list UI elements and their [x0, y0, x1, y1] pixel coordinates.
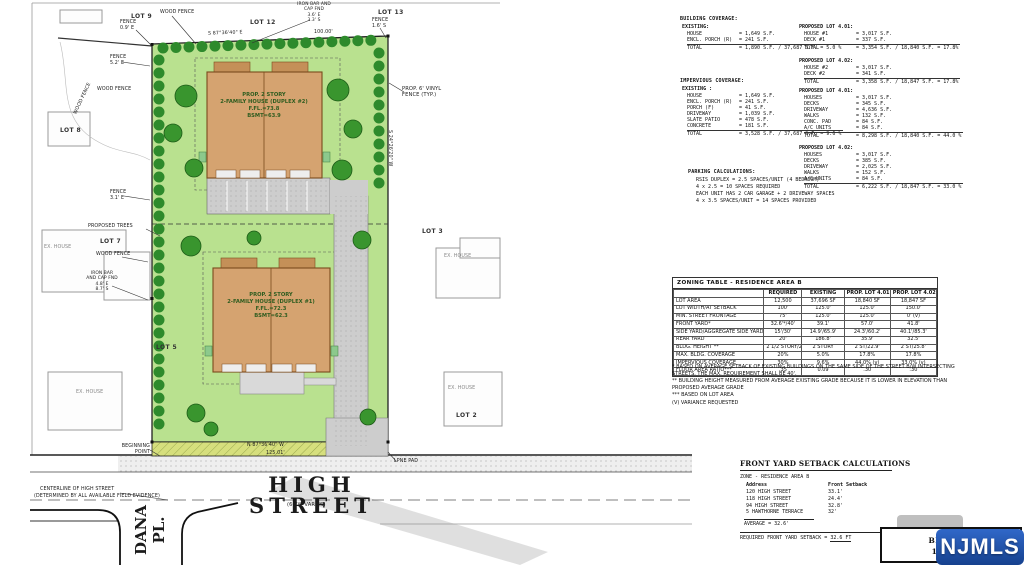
- building-coverage-existing: BUILDING COVERAGE: EXISTING: HOUSE= 1,64…: [680, 16, 796, 51]
- zoning-notes: * BASED ON AVERAGE SETBACK OF EXISTING B…: [672, 364, 964, 407]
- table-cell: TOTAL: [687, 131, 739, 138]
- table-row: 94 HIGH STREET32.8': [744, 503, 869, 510]
- deck: [214, 62, 250, 73]
- parking-title: PARKING CALCULATIONS:: [688, 169, 920, 175]
- impervious-existing-subtitle: EXISTING :: [682, 86, 796, 92]
- table-cell: 14.9'/65.9': [802, 329, 844, 337]
- table-cell: = 241 S.F.: [739, 37, 777, 43]
- label-proposed-trees: PROPOSED TREES: [88, 224, 133, 230]
- lot402-subtitle: PROPOSED LOT 4.02:: [799, 58, 937, 64]
- table-row: REAR YARD20'186.8'35.9'32.5': [674, 336, 937, 344]
- table-cell: 20%: [764, 352, 802, 360]
- table-cell: 33.1': [826, 489, 869, 496]
- setback-zone: ZONE - RESIDENCE AREA B: [740, 474, 892, 481]
- njmls-watermark-logo: NJMLS: [936, 529, 1024, 565]
- impervious-lot401-subtitle: PROPOSED LOT 4.01:: [799, 88, 937, 94]
- label-lot5: LOT 5: [156, 344, 177, 351]
- table-cell: 186.8': [802, 336, 844, 344]
- table-cell: EXISTING: [802, 290, 844, 298]
- table-row: MIN. STREET FRONTAGE75'125.0'125.0'0' (v…: [674, 313, 937, 321]
- table-row: DECK #1= 337 S.F.: [804, 37, 894, 43]
- table-cell: 12,500: [764, 298, 802, 306]
- label-vinyl-fence: PROP. 6' VINYL FENCE (TYP.): [402, 86, 441, 98]
- table-row: LOT AREA12,50037,696 SF18,840 SF18,847 S…: [674, 298, 937, 306]
- table-row: 5 HAWTHORNE TERRACE32': [744, 509, 869, 516]
- label-dim-bottom: 125.01': [266, 451, 285, 457]
- table-cell: DECK #1: [804, 37, 856, 43]
- tree-icon: [360, 409, 376, 425]
- label-lot8: LOT 8: [60, 127, 81, 134]
- tree-icon: [344, 120, 362, 138]
- deck: [279, 258, 315, 269]
- table-row: FRONT YARD*32.6'*/40'39.1'57.0'41.8': [674, 321, 937, 329]
- building-lot401-total: TOTAL= 3,354 S.F. / 18,840 S.F. = 17.8%: [804, 44, 960, 51]
- table-cell: = 341 S.F.: [856, 71, 894, 77]
- table-cell: 17.8%: [844, 352, 890, 360]
- impervious-existing-table: HOUSE= 1,649 S.F.ENCL. PORCH (R)= 241 S.…: [687, 93, 777, 129]
- label-fence-09: FENCE 0.9' E: [120, 20, 136, 32]
- label-lpne-pad: LPNE PAD: [394, 459, 418, 465]
- table-cell: 20': [764, 336, 802, 344]
- label-lot12: LOT 12: [250, 19, 276, 26]
- zoning-table-title: ZONING TABLE - RESIDENCE AREA B: [673, 278, 937, 289]
- table-cell: 24.4': [826, 496, 869, 503]
- impervious-title: IMPERVIOUS COVERAGE:: [680, 78, 796, 84]
- table-cell: TOTAL: [804, 79, 856, 86]
- table-row: DECK #2= 341 S.F.: [804, 71, 894, 77]
- tree-icon: [187, 404, 205, 422]
- table-cell: 2 1/2 STORY/28': [764, 344, 802, 352]
- table-cell: 37,696 SF: [802, 298, 844, 306]
- label-ex-house-lot3: EX. HOUSE: [444, 254, 471, 260]
- table-cell: 18,840 SF: [844, 298, 890, 306]
- table-row: AddressFront Setback: [744, 482, 869, 489]
- table-row: BLDG. HEIGHT **2 1/2 STORY/28'2 STORY2 S…: [674, 344, 937, 352]
- table-cell: 125.0': [802, 313, 844, 321]
- stoop: [240, 372, 304, 394]
- table-cell: 41.8': [890, 321, 936, 329]
- centerline-note-1: CENTERLINE OF HIGH STREET: [40, 487, 114, 493]
- tree-icon: [204, 422, 218, 436]
- table-cell: [674, 290, 764, 298]
- label-iron-bar-mid: IRON BAR AND CAP FND 4.8' E 8.7' S: [84, 271, 120, 292]
- table-cell: ENCL. PORCH (R): [687, 37, 739, 43]
- table-cell: REQUIRED: [764, 290, 802, 298]
- building-existing-table: HOUSE= 1,649 S.F.ENCL. PORCH (R)= 241 S.…: [687, 31, 777, 43]
- table-row: ENCL. PORCH (R)= 241 S.F.: [687, 37, 777, 43]
- text-line: 4 x 3.5 SPACES/UNIT = 14 SPACES PROVIDED: [696, 198, 920, 204]
- table-cell: CONCRETE: [687, 123, 739, 129]
- tree-icon: [353, 231, 371, 249]
- table-cell: 0' (v): [890, 313, 936, 321]
- text-line: ** BUILDING HEIGHT MEASURED FROM AVERAGE…: [672, 378, 964, 391]
- table-cell: 18,847 SF: [890, 298, 936, 306]
- text-line: 4 x 2.5 = 10 SPACES REQUIRED: [696, 184, 920, 190]
- table-cell: REAR YARD: [674, 336, 764, 344]
- table-cell: = 8,298 S.F. / 18,840 S.F. = 44.0 %: [856, 133, 963, 140]
- impervious-lot402-subtitle: PROPOSED LOT 4.02:: [799, 145, 937, 151]
- table-row: TOTAL= 8,298 S.F. / 18,840 S.F. = 44.0 %: [804, 133, 963, 140]
- table-cell: Front Setback: [826, 482, 869, 489]
- table-cell: 32.5': [890, 336, 936, 344]
- table-row: 120 HIGH STREET33.1': [744, 489, 869, 496]
- label-ex-house-lot7: EX. HOUSE: [44, 245, 71, 251]
- zoning-table: ZONING TABLE - RESIDENCE AREA B REQUIRED…: [672, 277, 938, 377]
- text-line: *** BASED ON LOT AREA: [672, 392, 964, 399]
- building-lot402-total: TOTAL= 3,358 S.F. / 18,847 S.F. = 17.8%: [804, 78, 960, 85]
- setback-average: AVERAGE = 32.6': [744, 519, 814, 528]
- tree-icon: [164, 124, 182, 142]
- building-lot401-table: HOUSE #1= 3,017 S.F.DECK #1= 337 S.F.: [804, 31, 894, 43]
- dana-pl-label: DANA PL.: [132, 502, 168, 558]
- label-wood-fence-mid: WOOD FENCE: [96, 252, 130, 258]
- label-wood-fence-top: WOOD FENCE: [160, 10, 194, 16]
- table-cell: LOT AREA: [674, 298, 764, 306]
- table-cell: 2 ST/25.8': [890, 344, 936, 352]
- table-cell: 24.3'/60.2': [844, 329, 890, 337]
- table-cell: 57.0': [844, 321, 890, 329]
- table-cell: 15'/30': [764, 329, 802, 337]
- walkway: [302, 378, 336, 385]
- label-bearing-bottom: N 87°36'40" W: [247, 443, 284, 449]
- table-cell: 94 HIGH STREET: [744, 503, 826, 510]
- building-coverage-title: BUILDING COVERAGE:: [680, 16, 796, 22]
- tree-icon: [327, 79, 349, 101]
- label-bearing-right: S 24°26'20" W: [386, 130, 392, 166]
- label-bearing-top: S 87°36'40" E: [208, 30, 243, 37]
- tree-icon: [185, 159, 203, 177]
- table-cell: TOTAL: [687, 45, 739, 52]
- table-cell: 125.0': [844, 313, 890, 321]
- existing-subtitle: EXISTING:: [682, 24, 796, 30]
- table-cell: 35.9': [844, 336, 890, 344]
- duplex-1-label: PROP. 2 STORY 2-FAMILY HOUSE (DUPLEX #1)…: [212, 292, 330, 320]
- table-cell: 125.0': [802, 305, 844, 313]
- table-cell: SIDE YARD/AGGREGATE SIDE YARD: [674, 329, 764, 337]
- table-cell: 39.1': [802, 321, 844, 329]
- table-cell: PROP. LOT 4.01: [844, 290, 890, 298]
- setback-required-label: REQUIRED FRONT YARD SETBACK =: [740, 535, 830, 541]
- table-cell: TOTAL: [804, 133, 856, 140]
- table-cell: 5.0%: [802, 352, 844, 360]
- deck: [221, 258, 257, 269]
- table-row: REQUIREDEXISTINGPROP. LOT 4.01PROP. LOT …: [674, 290, 937, 298]
- label-lot3: LOT 3: [422, 228, 443, 235]
- tree-icon: [247, 231, 261, 245]
- table-row: A/C UNITS= 84 S.F.: [804, 125, 894, 131]
- text-line: EACH UNIT HAS 2 CAR GARAGE + 2 DRIVEWAY …: [696, 191, 920, 197]
- site-plan-sheet: LOT 9 WOOD FENCE FENCE 0.9' E IRON BAR A…: [0, 0, 1024, 565]
- table-cell: MAX. BLDG. COVERAGE: [674, 352, 764, 360]
- duplex-2-footprint: [207, 72, 322, 178]
- table-row: MAX. BLDG. COVERAGE20%5.0%17.8%17.8%: [674, 352, 937, 360]
- lot401-subtitle: PROPOSED LOT 4.01:: [799, 24, 937, 30]
- building-lot402-table: HOUSE #2= 3,017 S.F.DECK #2= 341 S.F.: [804, 65, 894, 77]
- table-cell: = 3,354 S.F. / 18,840 S.F. = 17.8%: [856, 45, 960, 52]
- text-line: RSIS DUPLEX = 2.5 SPACES/UNIT (4 BEDROOM…: [696, 177, 920, 183]
- table-cell: = 181 S.F.: [739, 123, 777, 129]
- table-row: TOTAL= 3,358 S.F. / 18,847 S.F. = 17.8%: [804, 79, 960, 86]
- setback-title: FRONT YARD SETBACK CALCULATIONS: [740, 460, 892, 471]
- parking-calculations: PARKING CALCULATIONS: RSIS DUPLEX = 2.5 …: [680, 168, 920, 204]
- table-cell: BLDG. HEIGHT **: [674, 344, 764, 352]
- table-cell: 32': [826, 509, 869, 516]
- table-row: SIDE YARD/AGGREGATE SIDE YARD15'/30'14.9…: [674, 329, 937, 337]
- label-fence-52: FENCE 5.2' E: [110, 55, 126, 67]
- table-cell: 125.0': [844, 305, 890, 313]
- table-cell: 2 STORY: [802, 344, 844, 352]
- impervious-lot401-total: TOTAL= 8,298 S.F. / 18,840 S.F. = 44.0 %: [804, 132, 963, 139]
- setback-calculations: FRONT YARD SETBACK CALCULATIONS ZONE - R…: [740, 460, 892, 542]
- tree-icon: [181, 236, 201, 256]
- table-cell: 2 ST/22.9': [844, 344, 890, 352]
- table-row: 118 HIGH STREET24.4': [744, 496, 869, 503]
- table-cell: 150.0': [890, 305, 936, 313]
- table-cell: 75': [764, 313, 802, 321]
- label-ex-house-left: EX. HOUSE: [76, 390, 103, 396]
- table-cell: TOTAL: [804, 45, 856, 52]
- table-row: CONCRETE= 181 S.F.: [687, 123, 777, 129]
- table-cell: LOT WIDTH/AT SETBACK: [674, 305, 764, 313]
- table-cell: = 3,358 S.F. / 18,847 S.F. = 17.8%: [856, 79, 960, 86]
- table-cell: = 84 S.F.: [856, 125, 894, 131]
- tree-icon: [332, 160, 352, 180]
- label-dim-100: 100.00': [314, 30, 333, 36]
- tree-icon: [175, 85, 197, 107]
- impervious-coverage-existing: IMPERVIOUS COVERAGE: EXISTING : HOUSE= 1…: [680, 78, 796, 137]
- table-row: TOTAL= 3,354 S.F. / 18,840 S.F. = 17.8%: [804, 45, 960, 52]
- label-fence-31: FENCE 3.1' E: [110, 190, 126, 202]
- high-street-width-label: (66'W VARIES): [287, 502, 326, 508]
- duplex-2-label: PROP. 2 STORY 2-FAMILY HOUSE (DUPLEX #2)…: [206, 92, 322, 120]
- setback-table-header: AddressFront Setback: [744, 482, 869, 489]
- label-wood-fence-left2: WOOD FENCE: [97, 87, 131, 93]
- high-street-label: HIGH STREET: [212, 474, 412, 516]
- label-iron-bar-top: IRON BAR AND CAP FND 3.6' E 3.3' S: [296, 2, 332, 23]
- table-cell: A/C UNITS: [804, 125, 856, 131]
- deck: [272, 62, 308, 73]
- building-coverage-proposed: PROPOSED LOT 4.01: HOUSE #1= 3,017 S.F.D…: [797, 22, 937, 85]
- text-line: * BASED ON AVERAGE SETBACK OF EXISTING B…: [672, 364, 964, 377]
- label-beginning-point: BEGINNING POINT: [118, 444, 150, 456]
- table-cell: 120 HIGH STREET: [744, 489, 826, 496]
- table-cell: 32.8': [826, 503, 869, 510]
- parking-lines: RSIS DUPLEX = 2.5 SPACES/UNIT (4 BEDROOM…: [688, 177, 920, 204]
- table-cell: DECK #2: [804, 71, 856, 77]
- setback-required: REQUIRED FRONT YARD SETBACK = 32.6 FT: [740, 532, 892, 542]
- table-cell: 5 HAWTHORNE TERRACE: [744, 509, 826, 516]
- table-row: LOT WIDTH/AT SETBACK100'125.0'125.0'150.…: [674, 305, 937, 313]
- table-cell: 118 HIGH STREET: [744, 496, 826, 503]
- table-cell: 32.6'*/40': [764, 321, 802, 329]
- setback-required-value: 32.6 FT: [830, 535, 851, 542]
- label-lot7: LOT 7: [100, 238, 121, 245]
- label-lot2: LOT 2: [456, 412, 477, 419]
- table-cell: = 337 S.F.: [856, 37, 894, 43]
- table-cell: 17.8%: [890, 352, 936, 360]
- label-fence-16: FENCE 1.6' S: [372, 18, 388, 30]
- setback-table-body: 120 HIGH STREET33.1'118 HIGH STREET24.4'…: [744, 489, 869, 516]
- impervious-lot401-table: HOUSES= 3,017 S.F.DECKS= 345 S.F.DRIVEWA…: [804, 95, 894, 131]
- label-ex-house-lot2: EX. HOUSE: [448, 386, 475, 392]
- text-line: (V) VARIANCE REQUESTED: [672, 400, 964, 407]
- zoning-table-header: REQUIREDEXISTINGPROP. LOT 4.01PROP. LOT …: [674, 290, 937, 298]
- table-cell: FRONT YARD*: [674, 321, 764, 329]
- table-cell: Address: [744, 482, 826, 489]
- label-lot13: LOT 13: [378, 9, 404, 16]
- table-cell: 40.1'/85.3': [890, 329, 936, 337]
- table-cell: MIN. STREET FRONTAGE: [674, 313, 764, 321]
- centerline-note-2: (DETERMINED BY ALL AVAILABLE FIELD EVIDE…: [34, 494, 160, 500]
- table-cell: PROP. LOT 4.02: [890, 290, 936, 298]
- table-cell: 100': [764, 305, 802, 313]
